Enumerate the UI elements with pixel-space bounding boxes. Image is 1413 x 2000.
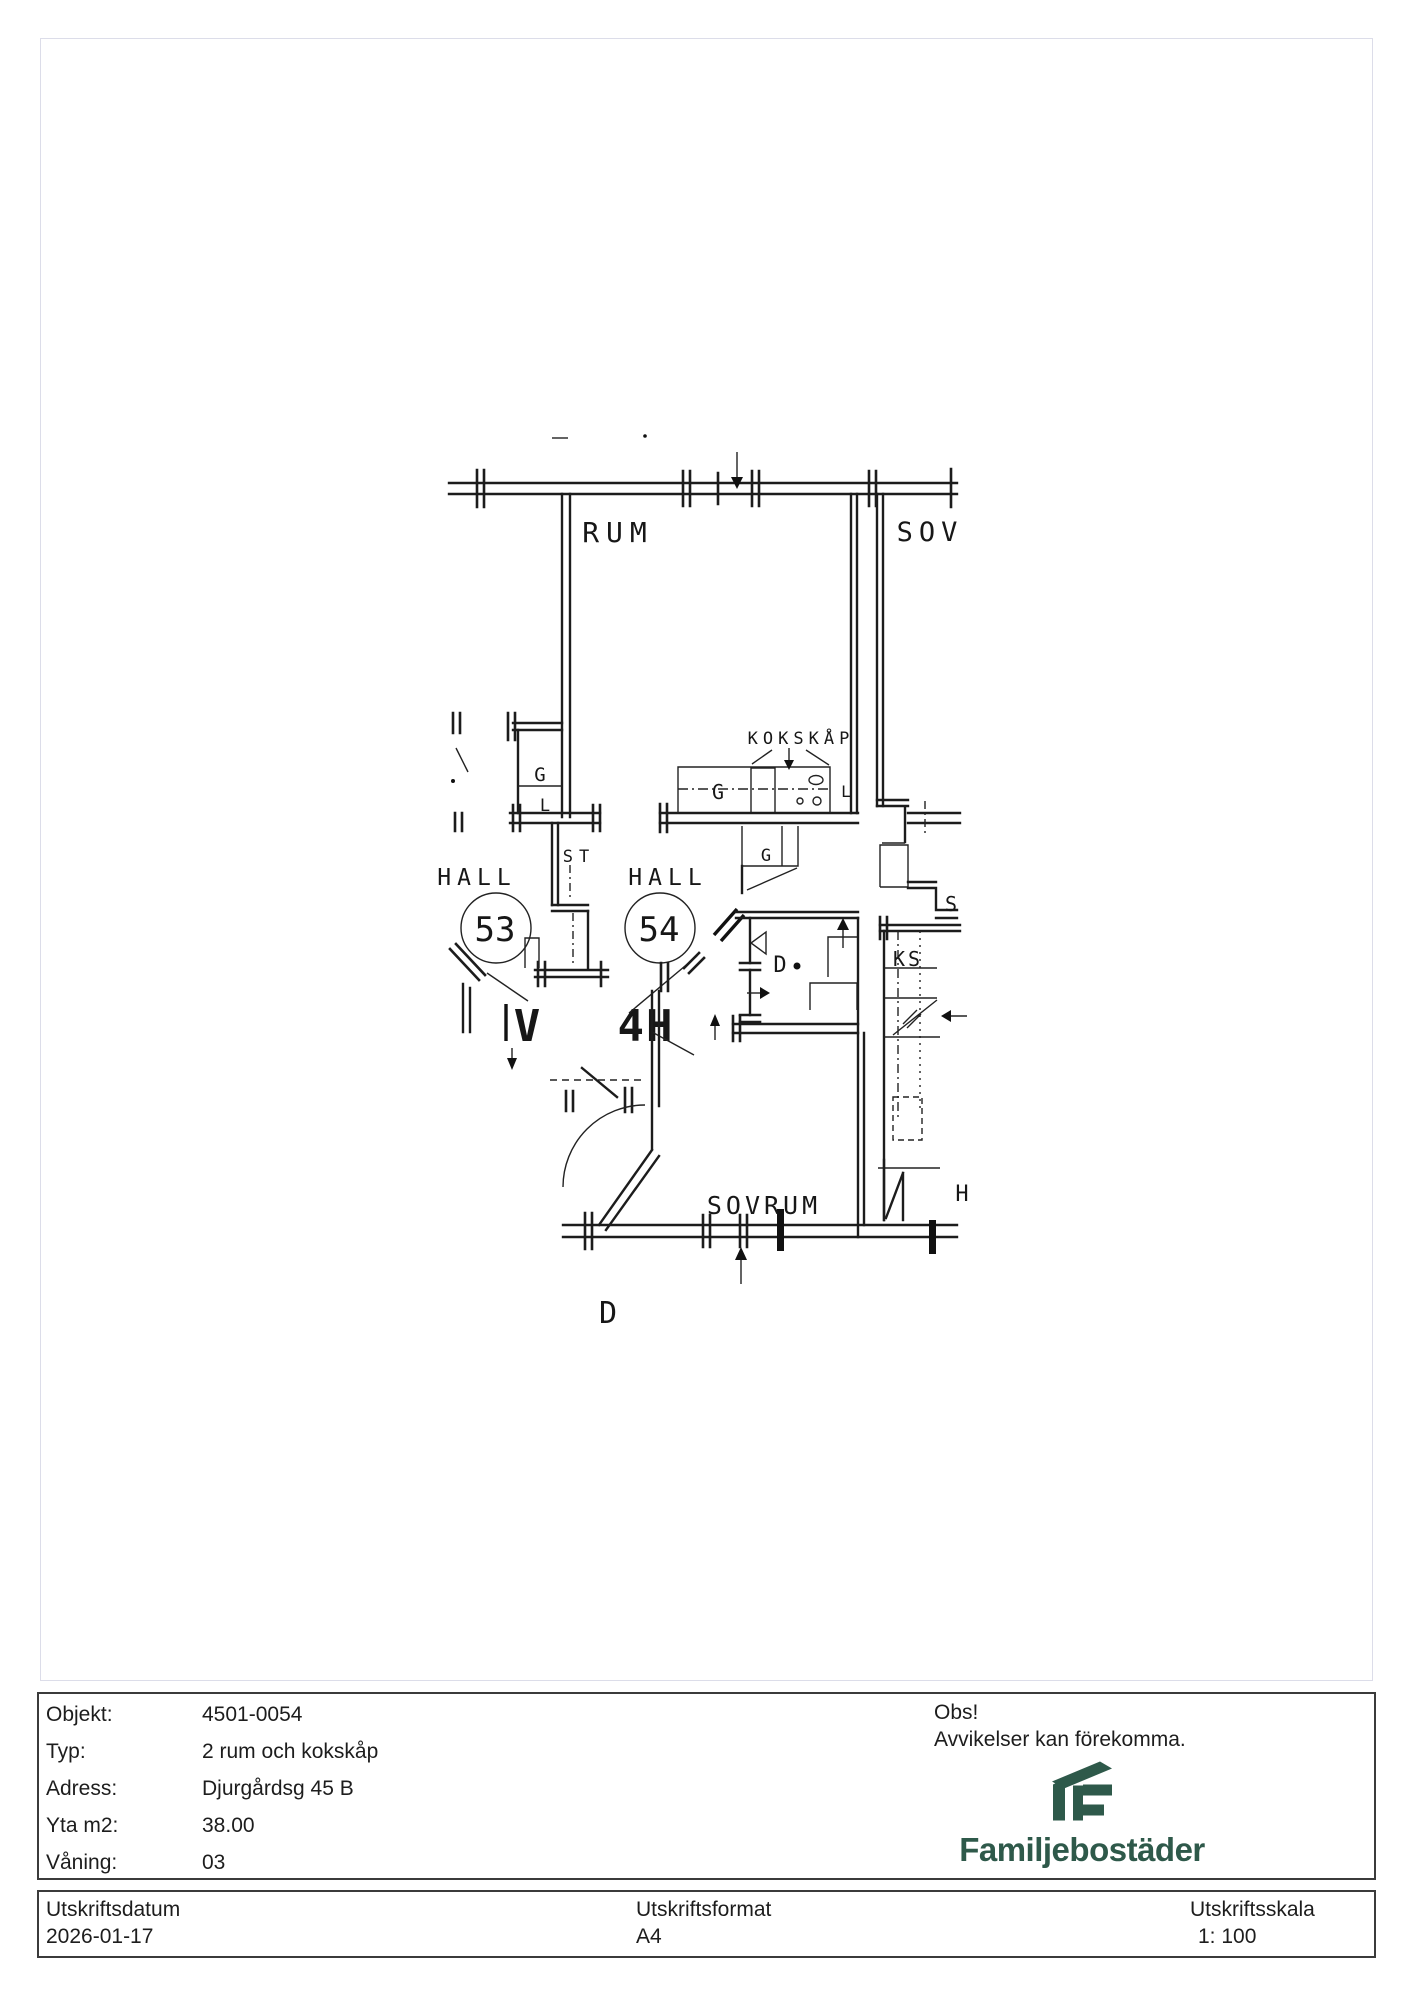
room-label-rum: RUM bbox=[582, 516, 654, 549]
yta-label: Yta m2: bbox=[46, 1807, 202, 1844]
kitchen-l-label: L bbox=[841, 782, 851, 801]
kitchen-kokskap: G L KOKSKÅP bbox=[678, 727, 854, 813]
adress-label: Adress: bbox=[46, 1770, 202, 1807]
notice-title: Obs! bbox=[934, 1699, 1186, 1726]
apartment-53: HALL 53 V bbox=[437, 713, 540, 1070]
typ-label: Typ: bbox=[46, 1733, 202, 1770]
print-scale: Utskriftsskala 1: 100 bbox=[1190, 1896, 1315, 1950]
shower-d-label: D bbox=[773, 953, 786, 978]
closet-g-l: G L bbox=[508, 713, 562, 816]
print-scale-label: Utskriftsskala bbox=[1190, 1898, 1315, 1921]
st-storage: ST bbox=[525, 823, 608, 986]
scan-noise bbox=[552, 434, 647, 438]
notice-text: Avvikelser kan förekomma. bbox=[934, 1726, 1186, 1753]
door-swing-arc bbox=[563, 1105, 645, 1187]
hall53-label: HALL bbox=[437, 865, 516, 891]
shaft-s-label: S bbox=[945, 892, 957, 916]
hall-g-label: G bbox=[761, 846, 771, 866]
print-date-label: Utskriftsdatum bbox=[46, 1898, 180, 1921]
print-scale-value: 1: 100 bbox=[1190, 1923, 1315, 1950]
apt54-tag: 4H bbox=[618, 1001, 675, 1052]
objekt-value: 4501-0054 bbox=[202, 1703, 302, 1726]
scanned-floorplan-page: { "plan": { "labels": { "rum": "RUM", "s… bbox=[0, 0, 1413, 2000]
interior-walls bbox=[510, 494, 883, 832]
kitchen-g-label: G bbox=[712, 780, 724, 804]
apt54-number: 54 bbox=[639, 910, 680, 950]
adress-value: Djurgårdsg 45 B bbox=[202, 1777, 354, 1800]
vaning-label: Våning: bbox=[46, 1844, 202, 1881]
kokskap-label: KOKSKÅP bbox=[748, 727, 855, 749]
closet-l-label: L bbox=[540, 796, 550, 816]
exterior-top-wall bbox=[449, 469, 957, 507]
object-info-box: Objekt:4501-0054 Typ:2 rum och kokskåp A… bbox=[37, 1692, 1376, 1880]
floor-plan: RUM SOV G L G L KOKSKÅP G bbox=[420, 425, 1080, 1345]
info-row-adress: Adress:Djurgårdsg 45 B bbox=[46, 1770, 1374, 1807]
brand-name: Familjebostäder bbox=[934, 1830, 1230, 1870]
print-format-label: Utskriftsformat bbox=[636, 1898, 771, 1921]
print-date-value: 2026-01-17 bbox=[46, 1923, 180, 1950]
neighbor-shaft: S KS H bbox=[877, 800, 969, 1220]
typ-value: 2 rum och kokskåp bbox=[202, 1740, 378, 1763]
apt53-tag: V bbox=[514, 1001, 541, 1052]
room-label-sov: SOV bbox=[897, 517, 964, 548]
hall54-label: HALL bbox=[628, 865, 707, 891]
yta-value: 38.00 bbox=[202, 1814, 255, 1837]
objekt-label: Objekt: bbox=[46, 1696, 202, 1733]
vaning-value: 03 bbox=[202, 1851, 225, 1874]
print-info-box: Utskriftsdatum 2026-01-17 Utskriftsforma… bbox=[37, 1890, 1376, 1958]
cut-d-label: D bbox=[599, 1296, 617, 1331]
print-format-value: A4 bbox=[636, 1923, 771, 1950]
print-format: Utskriftsformat A4 bbox=[636, 1896, 771, 1950]
apt53-number: 53 bbox=[475, 910, 516, 950]
cut-hall-label: H bbox=[955, 1182, 968, 1207]
closet-g-label: G bbox=[534, 764, 545, 786]
sovrum-label: SOVRUM bbox=[707, 1191, 821, 1220]
familjebostader-logo-icon bbox=[1050, 1758, 1114, 1823]
shower-room-d: D bbox=[710, 912, 858, 1041]
hall54-closet: G bbox=[742, 826, 798, 893]
print-date: Utskriftsdatum 2026-01-17 bbox=[46, 1896, 180, 1950]
st-label: ST bbox=[563, 847, 595, 867]
notice: Obs! Avvikelser kan förekomma. bbox=[934, 1699, 1186, 1753]
